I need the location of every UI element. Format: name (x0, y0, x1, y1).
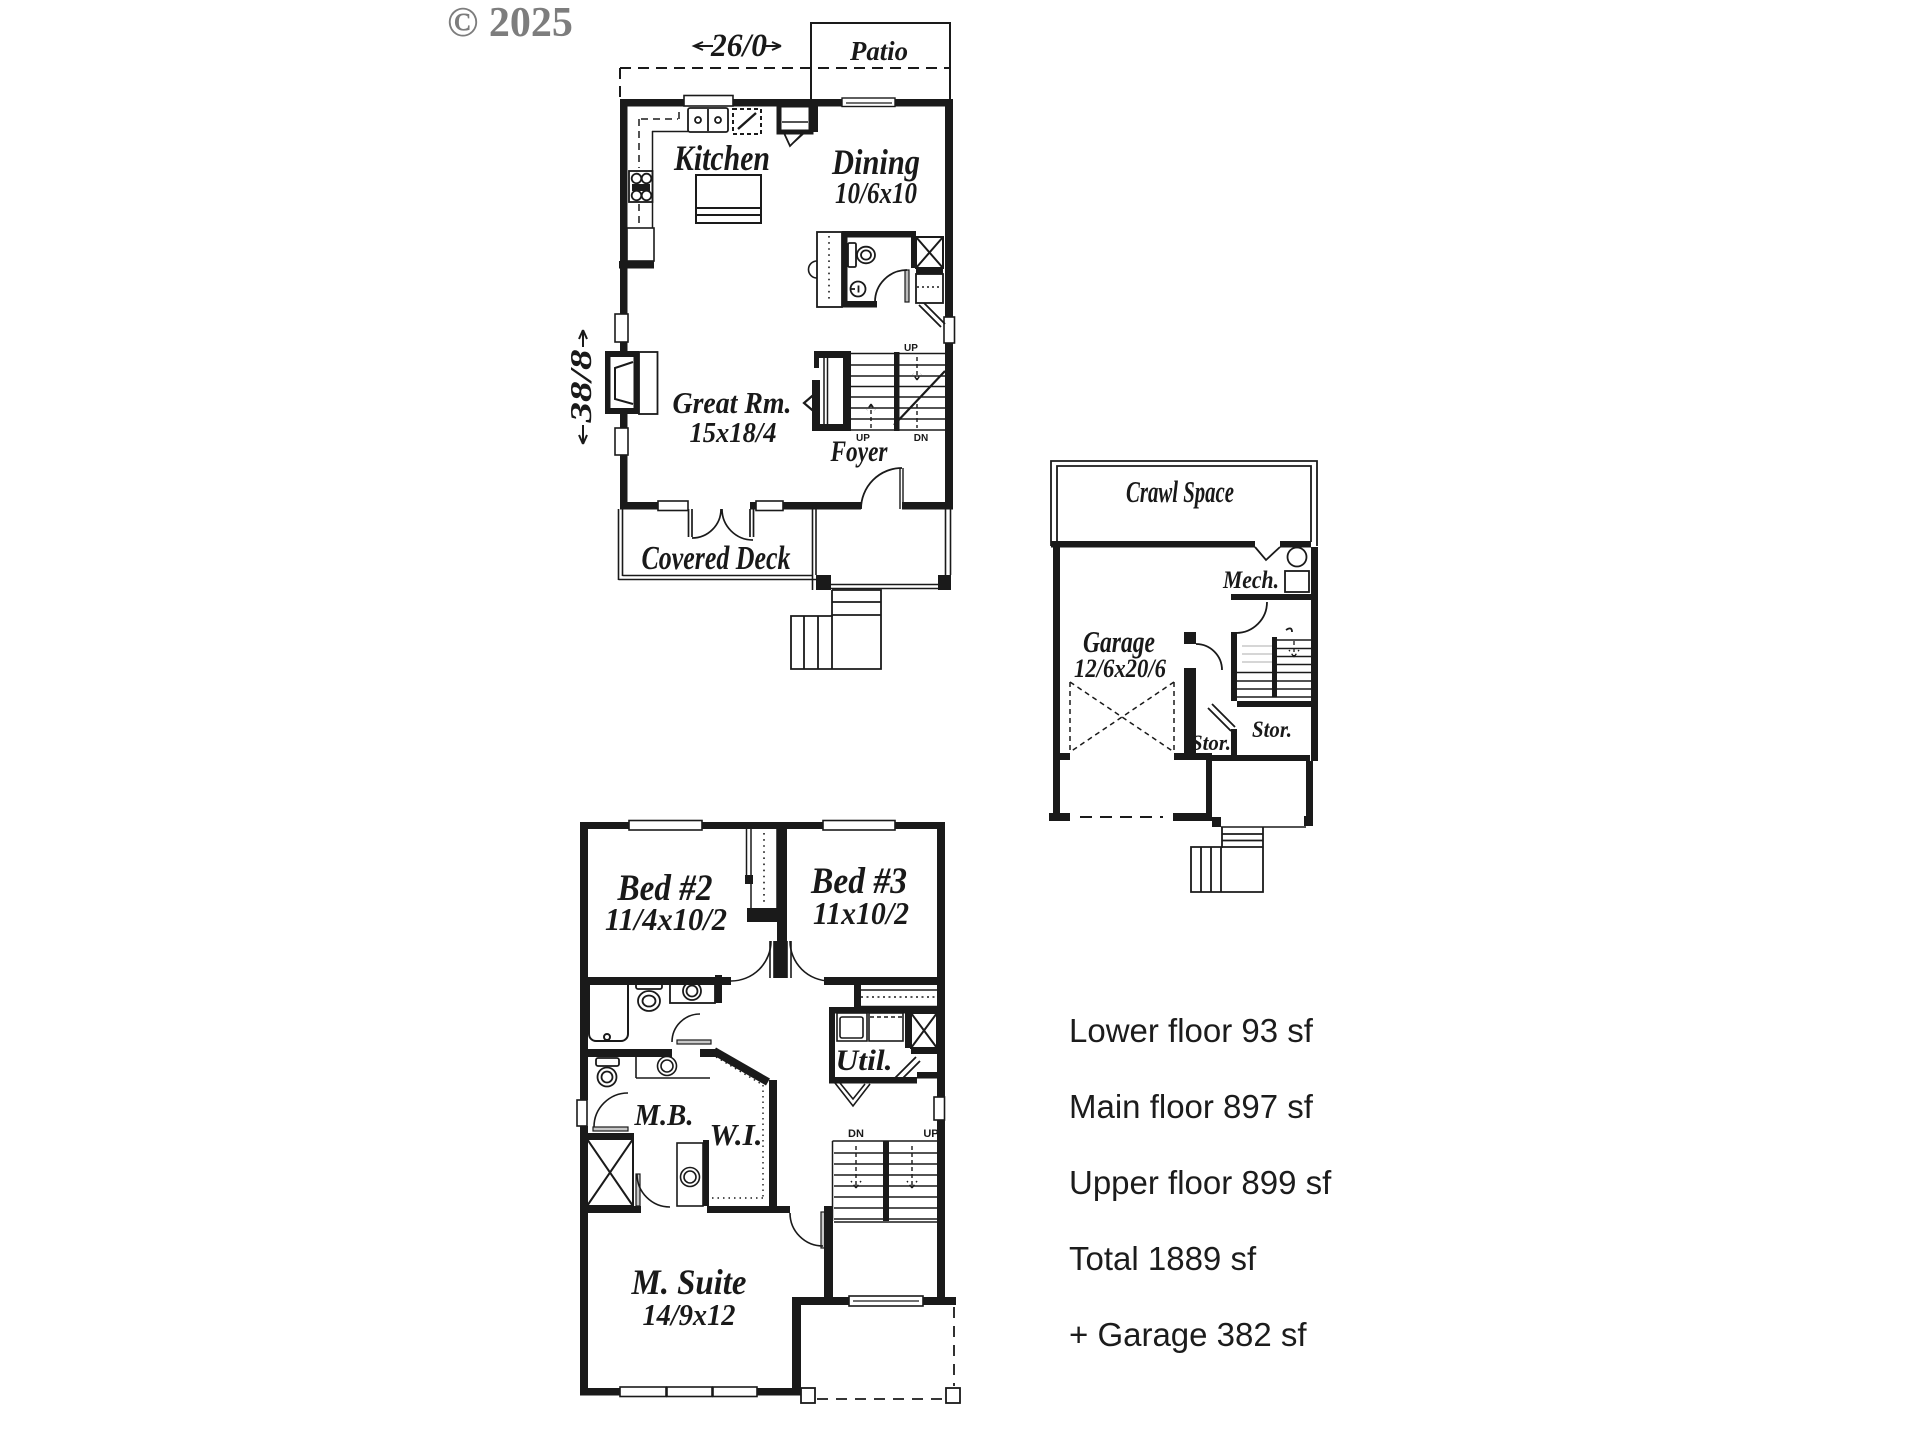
svg-text:Util.: Util. (836, 1044, 893, 1077)
svg-text:Crawl Space: Crawl Space (1126, 474, 1234, 509)
svg-text:Main floor 897 sf: Main floor 897 sf (1069, 1088, 1314, 1125)
svg-text:Upper floor 899 sf: Upper floor 899 sf (1069, 1164, 1332, 1201)
svg-text:14/9x12: 14/9x12 (643, 1297, 736, 1332)
svg-text:10/6x10: 10/6x10 (835, 175, 917, 210)
svg-text:Covered Deck: Covered Deck (642, 540, 791, 577)
svg-text:UP: UP (904, 343, 918, 354)
svg-text:W.I.: W.I. (710, 1117, 763, 1152)
svg-text:Kitchen: Kitchen (673, 138, 770, 178)
svg-text:12/6x20/6: 12/6x20/6 (1074, 654, 1166, 683)
svg-text:DN: DN (914, 433, 928, 444)
svg-text:UP: UP (923, 1128, 938, 1140)
svg-text:Stor.: Stor. (1191, 730, 1231, 755)
svg-text:Lower floor 93 sf: Lower floor 93 sf (1069, 1012, 1314, 1049)
svg-text:Total 1889 sf: Total 1889 sf (1069, 1240, 1257, 1277)
svg-text:M. Suite: M. Suite (631, 1262, 747, 1302)
svg-text:Foyer: Foyer (830, 435, 888, 468)
svg-text:11/4x10/2: 11/4x10/2 (605, 901, 727, 937)
svg-text:© 2025: © 2025 (447, 0, 573, 46)
svg-text:M.B.: M.B. (634, 1097, 694, 1132)
svg-text:11x10/2: 11x10/2 (813, 895, 909, 931)
svg-text:Great Rm.: Great Rm. (673, 385, 792, 420)
svg-text:Patio: Patio (849, 36, 908, 66)
svg-text:Stor.: Stor. (1252, 717, 1292, 742)
svg-text:15x18/4: 15x18/4 (690, 417, 777, 449)
svg-text:Mech.: Mech. (1222, 567, 1279, 594)
svg-text:+ Garage 382 sf: + Garage 382 sf (1069, 1316, 1307, 1353)
svg-text:DN: DN (848, 1128, 864, 1140)
svg-text:38/8: 38/8 (563, 349, 598, 424)
svg-text:26/0: 26/0 (710, 28, 767, 64)
